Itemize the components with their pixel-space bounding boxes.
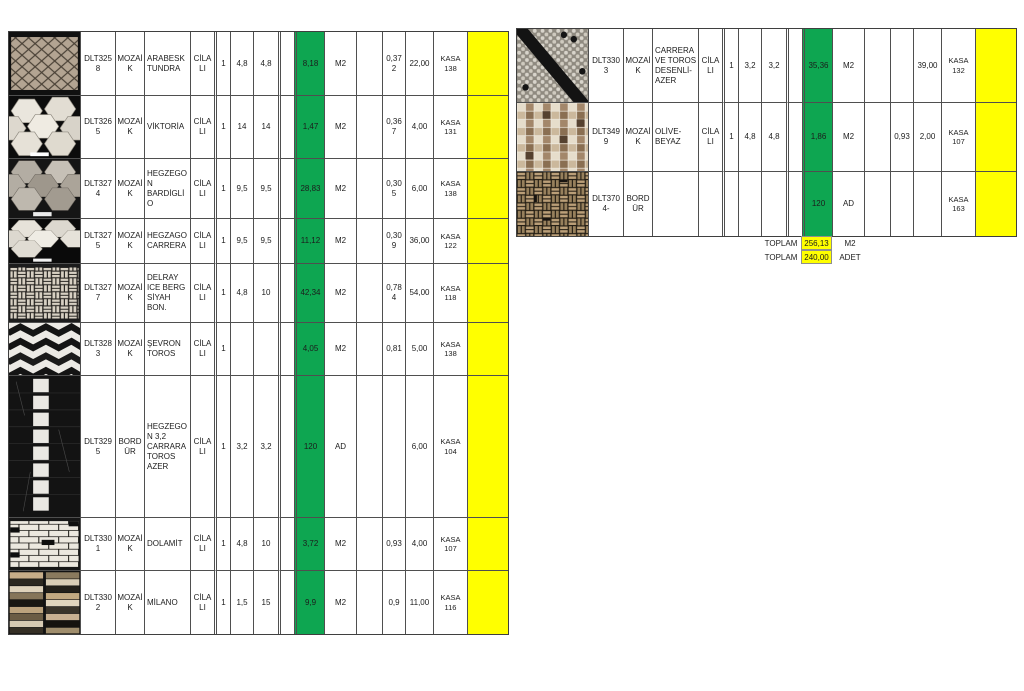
cell-spacer [865, 172, 891, 236]
cell-blank [278, 323, 294, 376]
table-row: DLT3277 MOZAİK DELRAY ICE BERG SİYAH BON… [9, 264, 508, 323]
cell-product-type: MOZAİK [116, 219, 145, 264]
cell-coef: 0,9 [383, 571, 406, 634]
cell-finish: CİLALI [699, 29, 722, 103]
cell-dim2: 9,5 [254, 159, 278, 219]
cell-product-code: DLT3275 [81, 219, 116, 264]
cell-kasa: KASA 107 [434, 518, 468, 571]
cell-highlight-yellow [468, 323, 508, 376]
cell-count: 39,00 [914, 29, 942, 103]
cell-product-name [653, 172, 699, 236]
cell-blank [278, 219, 294, 264]
cell-product-type: MOZAİK [116, 159, 145, 219]
cell-product-type: MOZAİK [116, 32, 145, 96]
cell-blank [786, 103, 802, 172]
cell-kasa: KASA 116 [434, 571, 468, 634]
cell-amount-green: 3,72 [294, 518, 325, 571]
cell-unit: M2 [833, 103, 865, 172]
cell-qty: 1 [214, 518, 231, 571]
cell-count: 5,00 [406, 323, 434, 376]
cell-product-type: MOZAİK [116, 264, 145, 323]
product-photo-hex-small-diagonal [517, 29, 589, 103]
total-value-yellow: 240,00 [801, 250, 832, 264]
cell-unit: M2 [325, 323, 357, 376]
cell-kasa: KASA 104 [434, 376, 468, 518]
cell-coef [891, 172, 914, 236]
cell-spacer [357, 32, 383, 96]
cell-kasa: KASA 118 [434, 264, 468, 323]
cell-product-type: BORDÜR [624, 172, 653, 236]
total-label: TOPLAM [761, 250, 801, 264]
cell-kasa: KASA 131 [434, 96, 468, 159]
cell-finish: CİLALI [191, 376, 214, 518]
cell-dim1 [739, 172, 762, 236]
table-row: DLT3274 MOZAİK HEGZEGON BARDİGLİO CİLALI… [9, 159, 508, 219]
cell-spacer [357, 159, 383, 219]
cell-coef: 0,367 [383, 96, 406, 159]
cell-finish: CİLALI [699, 103, 722, 172]
table-row: DLT3265 MOZAİK VİKTORİA CİLALI 1 14 14 1… [9, 96, 508, 159]
cell-highlight-yellow [468, 32, 508, 96]
product-photo-bordur-strip [9, 376, 81, 518]
cell-product-type: BORDÜR [116, 376, 145, 518]
table-row: DLT3301 MOZAİK DOLAMİT CİLALI 1 4,8 10 3… [9, 518, 508, 571]
cell-finish: CİLALI [191, 571, 214, 634]
product-photo-arabesk [9, 32, 81, 96]
cell-amount-green: 11,12 [294, 219, 325, 264]
cell-dim2: 14 [254, 96, 278, 159]
cell-finish: CİLALI [191, 323, 214, 376]
cell-dim2: 4,8 [254, 32, 278, 96]
cell-amount-green: 1,47 [294, 96, 325, 159]
product-photo-olive-squares [517, 103, 589, 172]
cell-highlight-yellow [468, 159, 508, 219]
table-row: DLT3303 MOZAİK CARRERA VE TOROS DESENLİ-… [517, 29, 1016, 103]
cell-count: 2,00 [914, 103, 942, 172]
cell-spacer [865, 29, 891, 103]
table-row: DLT3258 MOZAİK ARABESK TUNDRA CİLALI 1 4… [9, 32, 508, 96]
cell-kasa: KASA 138 [434, 32, 468, 96]
cell-product-type: MOZAİK [116, 96, 145, 159]
cell-blank [786, 29, 802, 103]
cell-amount-green: 8,18 [294, 32, 325, 96]
total-row-adet: TOPLAM 240,00 ADET [516, 250, 1015, 264]
cell-product-name: ARABESK TUNDRA [145, 32, 191, 96]
product-photo-dolamit-brick [9, 518, 81, 571]
cell-kasa: KASA 138 [434, 159, 468, 219]
cell-unit: M2 [833, 29, 865, 103]
cell-highlight-yellow [468, 376, 508, 518]
table-row: DLT3295 BORDÜR HEGZEGON 3,2 CARRARA TORO… [9, 376, 508, 518]
total-unit: M2 [832, 236, 868, 250]
table-row: DLT3704- BORDÜR 120 AD KASA 163 [517, 172, 1016, 236]
cell-highlight-yellow [468, 264, 508, 323]
cell-amount-green: 1,86 [802, 103, 833, 172]
product-photo-viktoria [9, 96, 81, 159]
cell-unit: M2 [325, 96, 357, 159]
cell-coef: 0,81 [383, 323, 406, 376]
cell-dim2: 4,8 [762, 103, 786, 172]
cell-count: 54,00 [406, 264, 434, 323]
cell-dim2: 3,2 [254, 376, 278, 518]
cell-product-type: MOZAİK [116, 323, 145, 376]
table-row: DLT3499 MOZAİK OLİVE-BEYAZ CİLALI 1 4,8 … [517, 103, 1016, 172]
cell-highlight-yellow [976, 29, 1016, 103]
cell-product-name: HEGZEGON 3,2 CARRARA TOROS AZER [145, 376, 191, 518]
cell-product-name: OLİVE-BEYAZ [653, 103, 699, 172]
cell-product-code: DLT3303 [589, 29, 624, 103]
cell-dim1: 14 [231, 96, 254, 159]
cell-unit: M2 [325, 571, 357, 634]
cell-unit: M2 [325, 32, 357, 96]
cell-dim1: 4,8 [231, 32, 254, 96]
cell-highlight-yellow [468, 219, 508, 264]
cell-qty: 1 [214, 96, 231, 159]
cell-product-code: DLT3283 [81, 323, 116, 376]
cell-blank [278, 518, 294, 571]
cell-spacer [357, 264, 383, 323]
cell-qty: 1 [214, 159, 231, 219]
cell-product-type: MOZAİK [624, 29, 653, 103]
cell-dim2: 9,5 [254, 219, 278, 264]
cell-product-name: CARRERA VE TOROS DESENLİ-AZER [653, 29, 699, 103]
cell-kasa: KASA 107 [942, 103, 976, 172]
cell-spacer [357, 323, 383, 376]
product-photo-chevron [9, 323, 81, 376]
cell-amount-green: 28,83 [294, 159, 325, 219]
cell-kasa: KASA 163 [942, 172, 976, 236]
cell-finish: CİLALI [191, 32, 214, 96]
cell-unit: AD [325, 376, 357, 518]
cell-blank [786, 172, 802, 236]
cell-unit: AD [833, 172, 865, 236]
cell-dim2: 3,2 [762, 29, 786, 103]
cell-dim1: 4,8 [231, 264, 254, 323]
cell-dim2: 15 [254, 571, 278, 634]
cell-unit: M2 [325, 264, 357, 323]
cell-dim2: 10 [254, 264, 278, 323]
cell-product-name: HEGZAGO CARRERA [145, 219, 191, 264]
cell-dim1: 9,5 [231, 219, 254, 264]
cell-amount-green: 4,05 [294, 323, 325, 376]
cell-unit: M2 [325, 219, 357, 264]
cell-highlight-yellow [976, 172, 1016, 236]
cell-blank [278, 159, 294, 219]
cell-spacer [357, 219, 383, 264]
cell-highlight-yellow [976, 103, 1016, 172]
cell-blank [278, 96, 294, 159]
cell-product-code: DLT3258 [81, 32, 116, 96]
product-photo-milano-strips [9, 571, 81, 634]
cell-kasa: KASA 122 [434, 219, 468, 264]
cell-amount-green: 120 [294, 376, 325, 518]
cell-kasa: KASA 138 [434, 323, 468, 376]
cell-spacer [865, 103, 891, 172]
cell-spacer [357, 571, 383, 634]
table-row: DLT3275 MOZAİK HEGZAGO CARRERA CİLALI 1 … [9, 219, 508, 264]
cell-coef: 0,305 [383, 159, 406, 219]
cell-qty: 1 [722, 29, 739, 103]
product-photo-carrera-hex [9, 219, 81, 264]
product-photo-delray-basketweave [9, 264, 81, 323]
cell-count: 22,00 [406, 32, 434, 96]
cell-count: 4,00 [406, 96, 434, 159]
cell-coef: 0,372 [383, 32, 406, 96]
cell-dim1: 4,8 [739, 103, 762, 172]
cell-product-name: VİKTORİA [145, 96, 191, 159]
cell-highlight-yellow [468, 571, 508, 634]
table-row: DLT3283 MOZAİK ŞEVRON TOROS CİLALI 1 4,0… [9, 323, 508, 376]
cell-dim1: 3,2 [231, 376, 254, 518]
cell-spacer [357, 376, 383, 518]
cell-blank [278, 376, 294, 518]
totals-section: TOPLAM 256,13 M2 TOPLAM 240,00 ADET [516, 236, 1015, 264]
cell-blank [278, 32, 294, 96]
cell-product-type: MOZAİK [116, 571, 145, 634]
cell-dim2: 10 [254, 518, 278, 571]
cell-finish: CİLALI [191, 518, 214, 571]
cell-product-name: HEGZEGON BARDİGLİO [145, 159, 191, 219]
cell-product-name: MİLANO [145, 571, 191, 634]
cell-product-code: DLT3301 [81, 518, 116, 571]
cell-finish: CİLALI [191, 219, 214, 264]
product-photo-basketweave-brown [517, 172, 589, 236]
cell-count [914, 172, 942, 236]
table-row: DLT3302 MOZAİK MİLANO CİLALI 1 1,5 15 9,… [9, 571, 508, 634]
cell-product-code: DLT3295 [81, 376, 116, 518]
cell-product-code: DLT3274 [81, 159, 116, 219]
product-photo-bardiglio [9, 159, 81, 219]
cell-finish: CİLALI [191, 159, 214, 219]
cell-product-code: DLT3499 [589, 103, 624, 172]
cell-dim1 [231, 323, 254, 376]
total-unit: ADET [832, 250, 868, 264]
cell-coef [383, 376, 406, 518]
cell-qty: 1 [214, 264, 231, 323]
cell-spacer [357, 518, 383, 571]
cell-product-name: DOLAMİT [145, 518, 191, 571]
total-label: TOPLAM [761, 236, 801, 250]
cell-coef: 0,309 [383, 219, 406, 264]
cell-blank [278, 571, 294, 634]
cell-highlight-yellow [468, 518, 508, 571]
cell-product-name: DELRAY ICE BERG SİYAH BON. [145, 264, 191, 323]
cell-qty: 1 [214, 571, 231, 634]
cell-dim2 [254, 323, 278, 376]
cell-product-code: DLT3265 [81, 96, 116, 159]
cell-product-code: DLT3302 [81, 571, 116, 634]
cell-dim1: 9,5 [231, 159, 254, 219]
cell-unit: M2 [325, 518, 357, 571]
cell-product-type: MOZAİK [624, 103, 653, 172]
cell-dim1: 3,2 [739, 29, 762, 103]
cell-count: 6,00 [406, 376, 434, 518]
cell-qty [722, 172, 739, 236]
cell-dim2 [762, 172, 786, 236]
cell-spacer [357, 96, 383, 159]
cell-coef: 0,93 [383, 518, 406, 571]
cell-amount-green: 120 [802, 172, 833, 236]
products-table-left: DLT3258 MOZAİK ARABESK TUNDRA CİLALI 1 4… [8, 31, 509, 635]
cell-coef: 0,784 [383, 264, 406, 323]
cell-amount-green: 35,36 [802, 29, 833, 103]
cell-kasa: KASA 132 [942, 29, 976, 103]
cell-qty: 1 [214, 376, 231, 518]
cell-product-type: MOZAİK [116, 518, 145, 571]
cell-product-code: DLT3277 [81, 264, 116, 323]
cell-highlight-yellow [468, 96, 508, 159]
cell-blank [278, 264, 294, 323]
cell-product-name: ŞEVRON TOROS [145, 323, 191, 376]
cell-dim1: 1,5 [231, 571, 254, 634]
cell-product-code: DLT3704- [589, 172, 624, 236]
cell-coef: 0,93 [891, 103, 914, 172]
cell-count: 36,00 [406, 219, 434, 264]
cell-finish: CİLALI [191, 264, 214, 323]
cell-qty: 1 [214, 323, 231, 376]
cell-qty: 1 [722, 103, 739, 172]
cell-count: 4,00 [406, 518, 434, 571]
cell-dim1: 4,8 [231, 518, 254, 571]
cell-finish: CİLALI [191, 96, 214, 159]
products-table-right: DLT3303 MOZAİK CARRERA VE TOROS DESENLİ-… [516, 28, 1017, 237]
cell-amount-green: 9,9 [294, 571, 325, 634]
total-value-yellow: 256,13 [801, 236, 832, 250]
cell-count: 6,00 [406, 159, 434, 219]
cell-unit: M2 [325, 159, 357, 219]
cell-qty: 1 [214, 219, 231, 264]
cell-count: 11,00 [406, 571, 434, 634]
total-row-m2: TOPLAM 256,13 M2 [516, 236, 1015, 250]
cell-coef [891, 29, 914, 103]
cell-amount-green: 42,34 [294, 264, 325, 323]
cell-finish [699, 172, 722, 236]
cell-qty: 1 [214, 32, 231, 96]
